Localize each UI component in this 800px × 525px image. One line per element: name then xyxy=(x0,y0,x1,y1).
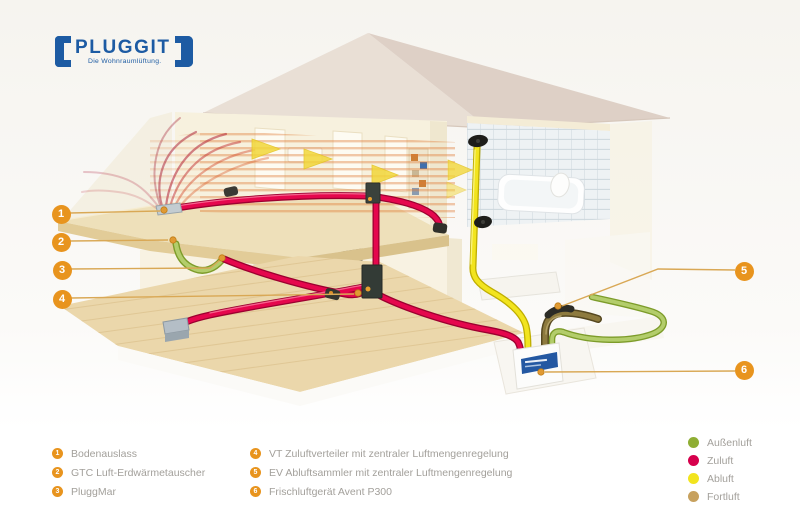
callout-marker-6: 6 xyxy=(735,361,754,380)
pluggit-logo: PLUGGIT Die Wohnraumlüftung. xyxy=(55,36,193,67)
legend-item-gtc: 2 GTC Luft-Erdwärmetauscher xyxy=(52,466,205,479)
legend-item-aussenluft: Außenluft xyxy=(688,436,752,449)
callout-marker-4: 4 xyxy=(53,290,72,309)
legend-label-4: VT Zuluftverteiler mit zentraler Luftmen… xyxy=(269,448,509,460)
legend-item-vt: 4 VT Zuluftverteiler mit zentraler Luftm… xyxy=(250,447,509,460)
mirror xyxy=(492,244,538,260)
leader-line-2 xyxy=(70,240,168,241)
floor-outlet-ground xyxy=(163,318,189,342)
duct-end-cap-right xyxy=(432,222,447,234)
legend-item-frischluftgeraet: 6 Frischluftgerät Avent P300 xyxy=(250,485,392,498)
callout-marker-5: 5 xyxy=(735,262,754,281)
abluft-color-dot xyxy=(688,473,699,484)
legend-item-zuluft: Zuluft xyxy=(688,454,733,467)
legend-label-1: Bodenauslass xyxy=(71,448,137,460)
legend-num-5: 5 xyxy=(250,467,261,478)
ventilation-unit-avent-p300 xyxy=(513,343,563,389)
legend-num-1: 1 xyxy=(52,448,63,459)
legend-item-bodenauslass: 1 Bodenauslass xyxy=(52,447,137,460)
zuluft-color-dot xyxy=(688,455,699,466)
legend-label-6: Frischluftgerät Avent P300 xyxy=(269,486,392,498)
aussenluft-label: Außenluft xyxy=(707,437,752,449)
legend-num-4: 4 xyxy=(250,448,261,459)
legend-label-3: PluggMar xyxy=(71,486,116,498)
callout-marker-3: 3 xyxy=(53,261,72,280)
legend-label-5: EV Abluftsammler mit zentraler Luftmenge… xyxy=(269,467,512,479)
vt-distributor-upper xyxy=(366,183,380,203)
legend-num-2: 2 xyxy=(52,467,63,478)
aussenluft-color-dot xyxy=(688,437,699,448)
brand-name: PLUGGIT xyxy=(75,38,171,57)
legend-num-6: 6 xyxy=(250,486,261,497)
fortluft-color-dot xyxy=(688,491,699,502)
legend-item-pluggmar: 3 PluggMar xyxy=(52,485,116,498)
legend-item-abluft: Abluft xyxy=(688,472,734,485)
zuluft-label: Zuluft xyxy=(707,455,733,467)
callout-marker-1: 1 xyxy=(52,205,71,224)
vt-distributor-ground xyxy=(362,265,382,298)
legend-item-ev: 5 EV Abluftsammler mit zentraler Luftmen… xyxy=(250,466,512,479)
bathtub xyxy=(497,174,585,214)
callout-marker-2: 2 xyxy=(52,233,71,252)
fortluft-label: Fortluft xyxy=(707,491,740,503)
abluft-label: Abluft xyxy=(707,473,734,485)
brand-tagline: Die Wohnraumlüftung. xyxy=(75,58,162,65)
legend-label-2: GTC Luft-Erdwärmetauscher xyxy=(71,467,205,479)
logo-bracket-left-icon xyxy=(55,36,71,67)
legend-num-3: 3 xyxy=(52,486,63,497)
pluggit-ventilation-scheme: PLUGGIT Die Wohnraumlüftung. 1 2 3 4 5 6… xyxy=(0,0,800,525)
legend-item-fortluft: Fortluft xyxy=(688,490,740,503)
logo-bracket-right-icon xyxy=(175,36,193,67)
